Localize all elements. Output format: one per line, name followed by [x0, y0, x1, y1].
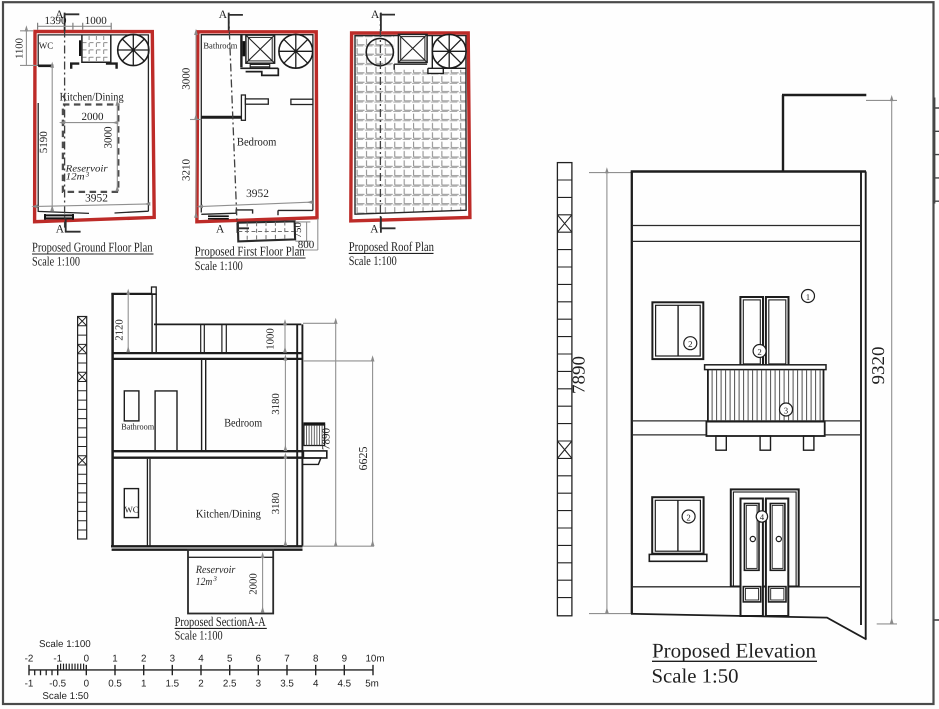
svg-text:3000: 3000: [103, 126, 115, 149]
svg-text:10m: 10m: [365, 654, 384, 665]
svg-text:Proposed Elevation: Proposed Elevation: [652, 640, 817, 663]
svg-text:Bedroom: Bedroom: [224, 416, 262, 429]
svg-text:Scale 1:100: Scale 1:100: [32, 253, 80, 268]
svg-text:Bathroom: Bathroom: [203, 41, 237, 51]
svg-text:7890: 7890: [321, 428, 333, 451]
svg-text:6625: 6625: [356, 447, 370, 471]
svg-text:Bathroom: Bathroom: [121, 421, 154, 431]
svg-text:1390: 1390: [45, 15, 68, 27]
svg-text:3: 3: [212, 575, 217, 583]
svg-text:7890: 7890: [569, 356, 589, 394]
svg-text:Scale 1:50: Scale 1:50: [42, 691, 89, 702]
svg-text:2.5: 2.5: [223, 679, 237, 690]
svg-text:Scale 1:100: Scale 1:100: [195, 258, 243, 273]
svg-text:12m: 12m: [196, 576, 213, 588]
svg-text:750: 750: [293, 222, 304, 238]
svg-text:1: 1: [141, 679, 146, 690]
svg-text:0: 0: [84, 679, 90, 690]
svg-text:1000: 1000: [85, 15, 108, 27]
svg-text:5m: 5m: [365, 679, 379, 690]
svg-text:-0.5: -0.5: [49, 679, 66, 690]
svg-text:Bedroom: Bedroom: [237, 135, 277, 148]
svg-text:12m: 12m: [66, 172, 85, 183]
svg-text:0.5: 0.5: [108, 679, 122, 690]
svg-text:9320: 9320: [868, 347, 888, 385]
svg-text:A: A: [219, 9, 228, 21]
svg-text:1.5: 1.5: [165, 679, 179, 690]
svg-text:3952: 3952: [246, 188, 269, 200]
svg-text:2: 2: [757, 347, 761, 357]
svg-text:Scale 1:100: Scale 1:100: [349, 253, 397, 268]
svg-text:1: 1: [112, 654, 117, 665]
svg-text:2: 2: [141, 654, 146, 665]
svg-text:3: 3: [170, 654, 176, 665]
svg-text:Scale 1:50: Scale 1:50: [652, 666, 739, 688]
svg-text:2000: 2000: [82, 111, 105, 123]
svg-text:0: 0: [84, 654, 90, 665]
svg-text:3210: 3210: [180, 159, 192, 182]
svg-text:WC: WC: [125, 505, 139, 515]
svg-text:Kitchen/Dining: Kitchen/Dining: [196, 507, 261, 520]
svg-text:4: 4: [198, 654, 204, 665]
svg-text:5: 5: [227, 654, 233, 665]
svg-text:A: A: [56, 223, 65, 235]
svg-text:3: 3: [256, 679, 262, 690]
svg-text:9: 9: [342, 654, 347, 665]
svg-text:2: 2: [688, 339, 692, 349]
svg-text:2120: 2120: [113, 319, 125, 341]
svg-text:7: 7: [284, 654, 289, 665]
svg-text:4: 4: [313, 679, 319, 690]
svg-text:2: 2: [198, 679, 203, 690]
svg-text:Scale 1:100: Scale 1:100: [175, 628, 223, 643]
svg-text:3: 3: [784, 405, 789, 415]
svg-text:6: 6: [256, 654, 262, 665]
svg-text:Kitchen/Dining: Kitchen/Dining: [60, 90, 124, 103]
svg-text:WC: WC: [39, 40, 54, 50]
svg-text:-1: -1: [25, 679, 34, 690]
svg-text:Proposed Ground Floor Plan: Proposed Ground Floor Plan: [32, 240, 153, 255]
svg-text:-2: -2: [25, 654, 34, 665]
svg-text:3180: 3180: [270, 493, 282, 515]
svg-text:Proposed Roof Plan: Proposed Roof Plan: [349, 239, 435, 254]
svg-text:A: A: [371, 9, 380, 21]
svg-text:Scale 1:100: Scale 1:100: [39, 639, 91, 650]
svg-text:4: 4: [760, 512, 765, 522]
svg-text:-1: -1: [53, 654, 62, 665]
svg-text:4.5: 4.5: [337, 679, 351, 690]
svg-text:1100: 1100: [14, 38, 25, 59]
svg-text:8: 8: [313, 654, 319, 665]
svg-text:3000: 3000: [180, 67, 192, 90]
svg-text:A: A: [370, 223, 379, 235]
svg-text:3: 3: [85, 171, 90, 178]
svg-text:2: 2: [686, 512, 690, 522]
svg-text:2000: 2000: [248, 573, 260, 595]
svg-text:3.5: 3.5: [280, 679, 294, 690]
svg-text:A: A: [216, 223, 225, 235]
svg-text:Proposed SectionA-A: Proposed SectionA-A: [175, 614, 266, 629]
svg-text:1: 1: [806, 292, 810, 302]
svg-text:Proposed First Floor Plan: Proposed First Floor Plan: [195, 243, 305, 258]
svg-text:1000: 1000: [265, 328, 277, 350]
svg-text:3952: 3952: [85, 192, 108, 204]
svg-text:3180: 3180: [270, 393, 282, 415]
svg-text:5190: 5190: [38, 131, 50, 154]
